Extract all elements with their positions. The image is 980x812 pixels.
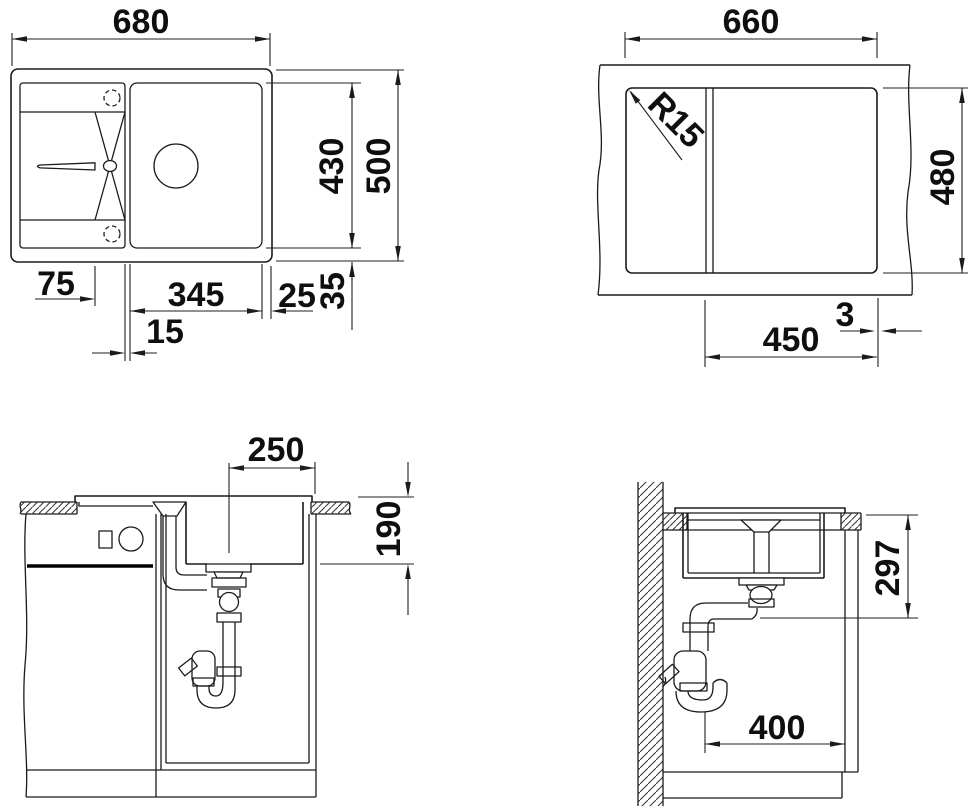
dim-label-250: 250	[248, 431, 305, 469]
base-cabinet-front	[24, 514, 316, 797]
waste-trap-side	[659, 578, 784, 712]
runnel-pipe	[163, 516, 207, 590]
wall-section	[638, 482, 663, 806]
cabinet-break-left	[24, 514, 27, 797]
worktop-break-right	[907, 65, 913, 295]
ball-joint	[220, 593, 239, 612]
tap-hole-top	[104, 90, 120, 106]
dim-runnel-length: 75	[35, 265, 95, 306]
strainer-flange	[206, 564, 251, 572]
dim-label-400: 400	[749, 709, 806, 747]
strainer-nut	[212, 578, 246, 587]
dim-label-680: 680	[113, 3, 170, 41]
front-section-view: 250 190	[20, 431, 414, 797]
dim-label-297: 297	[869, 540, 907, 597]
sink-section	[75, 496, 312, 564]
crosshatch-panel	[95, 112, 125, 220]
sink-side-section	[675, 508, 845, 578]
dim-edge-margin: 35	[314, 262, 355, 330]
socket-circle	[119, 527, 143, 551]
tap-hole-bottom	[104, 226, 120, 242]
dim-bowl-width: 345	[130, 264, 271, 319]
dim-label-345: 345	[168, 276, 225, 314]
dim-overall-width: 680	[12, 3, 270, 66]
dim-label-25: 25	[278, 277, 316, 315]
bowl-walls	[186, 502, 303, 564]
dim-label-430: 430	[313, 138, 351, 195]
knob-hole	[104, 161, 117, 172]
dim-label-660: 660	[723, 3, 780, 41]
trap-cup	[192, 651, 215, 686]
dim-label-450: 450	[763, 321, 820, 359]
dim-bowl-to-edge: 25	[271, 277, 316, 315]
cutout-divider	[706, 88, 713, 273]
dim-bowl-depth: 190	[320, 462, 414, 615]
waste-trap-assembly	[179, 564, 251, 708]
technical-drawing-canvas: 680 500 430 35 75	[0, 0, 980, 812]
dim-label-35: 35	[314, 272, 352, 310]
dim-basin-depth: 430	[266, 83, 361, 248]
dim-label-75: 75	[37, 265, 75, 303]
ball-joint-side	[750, 587, 772, 604]
dim-cutout-width: 660	[625, 3, 877, 58]
runnel-drain-funnel	[153, 502, 186, 516]
dim-label-r15: R15	[640, 85, 711, 156]
dim-label-500: 500	[360, 138, 398, 195]
dim-cabinet-clearance: 400	[705, 709, 845, 753]
dim-label-190: 190	[370, 501, 408, 558]
dim-label-3: 3	[836, 296, 855, 334]
socket-symbol	[99, 531, 112, 548]
plan-view: 680 500 430 35 75	[11, 3, 404, 361]
runnel-groove	[38, 163, 96, 170]
sink-installation-drawing: 680 500 430 35 75	[0, 0, 980, 812]
side-section-view: 297 400	[638, 482, 918, 806]
tail-pipe	[223, 622, 235, 690]
worktop-break-left	[598, 65, 602, 295]
dim-corner-radius: R15	[629, 85, 711, 160]
dim-edge-offset: 3	[836, 296, 922, 334]
cutout-view: R15 660 480 450 3	[598, 3, 968, 367]
dim-label-480: 480	[924, 149, 962, 206]
bowl-outline	[130, 83, 262, 248]
dim-label-15: 15	[146, 313, 184, 351]
dim-drain-offset: 250	[229, 431, 315, 553]
drain-circle	[154, 144, 198, 188]
dim-cutout-depth: 480	[883, 88, 968, 273]
